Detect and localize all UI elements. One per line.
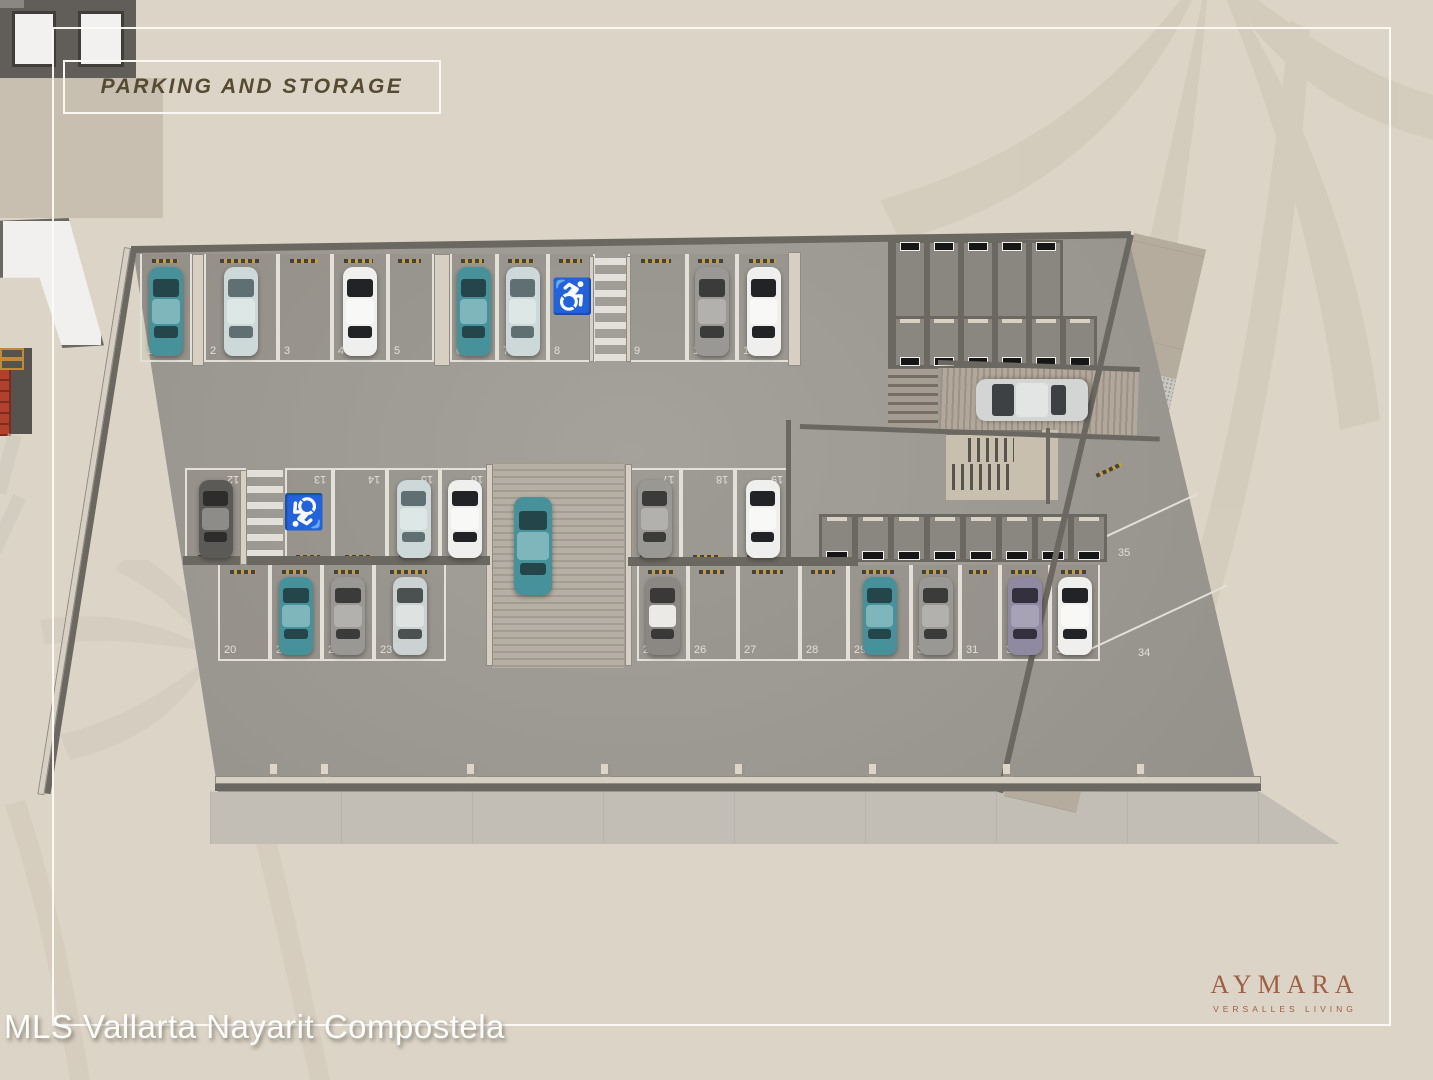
stall-partition: [434, 254, 450, 366]
space-number: 14: [368, 473, 380, 484]
car-roof: [1016, 383, 1047, 417]
car-roof: [152, 299, 180, 324]
car-roof: [1061, 605, 1089, 627]
wheel-stop: [969, 570, 989, 574]
car-rear-window: [229, 326, 253, 338]
car-rear-window: [1063, 629, 1087, 639]
wheel-stop: [1095, 462, 1122, 477]
stair-flight: [968, 438, 1014, 462]
car-roof: [649, 605, 677, 627]
storage-sill: [1007, 517, 1027, 521]
wheel-stop: [862, 570, 894, 574]
stall-partition: [240, 470, 247, 565]
car-windshield: [283, 588, 309, 604]
parking-space-5: 5: [388, 254, 434, 362]
central-ramp: [492, 462, 624, 668]
car-rear-window: [1013, 629, 1037, 639]
storage-door: [935, 552, 954, 559]
car-rear-window: [284, 629, 308, 639]
parking-space-26: 26: [688, 565, 738, 661]
parked-car: [863, 577, 897, 656]
parked-car: [746, 480, 780, 559]
parking-space-31: 31: [960, 565, 1000, 661]
parked-car: [1008, 577, 1042, 656]
car-roof: [346, 299, 374, 324]
parked-car: [638, 480, 672, 559]
car-roof: [400, 508, 428, 530]
storage-sill: [899, 517, 919, 521]
space-number: 8: [554, 346, 560, 357]
column-post: [601, 764, 611, 777]
car-rear-window: [348, 326, 372, 338]
parked-car: [646, 577, 680, 656]
stall-line-diagonal: [1082, 584, 1228, 653]
palm-trunk-shadow: [0, 433, 22, 495]
crosswalk-wall: [626, 256, 631, 362]
red-box: [0, 392, 11, 403]
red-box: [0, 403, 11, 414]
crosswalk: [246, 470, 283, 562]
slide: 1234567891011121314151617181920212223252…: [0, 0, 1433, 1080]
car-rear-window: [520, 563, 547, 576]
car-roof: [866, 605, 894, 627]
island-wall: [628, 557, 858, 566]
storage-unit: [1029, 316, 1063, 368]
crosswalk: [595, 258, 628, 362]
car-rear-window: [1051, 385, 1066, 414]
car-roof: [334, 605, 362, 627]
storage-sill: [900, 319, 919, 323]
car-windshield: [992, 384, 1014, 416]
car-roof: [509, 299, 537, 324]
wheel-stop: [290, 259, 318, 263]
parked-car: [919, 577, 953, 656]
column-post: [1137, 764, 1147, 777]
car-windshield: [203, 491, 229, 507]
wheel-stop: [398, 259, 421, 263]
car-windshield: [510, 279, 536, 297]
storage-unit: [1071, 514, 1107, 562]
stair-wall: [1046, 428, 1050, 504]
car-roof: [396, 605, 424, 627]
car-windshield: [397, 588, 423, 604]
storage-sill: [1036, 319, 1055, 323]
column-post: [467, 764, 477, 777]
car-rear-window: [651, 629, 675, 639]
wheel-stop: [1061, 570, 1086, 574]
space-number: 2: [210, 346, 216, 357]
car-rear-window: [643, 532, 667, 542]
storage-sill: [1079, 517, 1099, 521]
car-windshield: [1012, 588, 1038, 604]
red-box: [0, 370, 11, 381]
column-post: [270, 764, 280, 777]
storage-sill: [935, 517, 955, 521]
parked-car: [695, 267, 729, 356]
parking-space-28: 28: [800, 565, 848, 661]
space-number: 26: [694, 645, 706, 656]
storage-sill: [1002, 319, 1021, 323]
wheel-stop: [698, 259, 723, 263]
car-windshield: [750, 491, 776, 507]
column-post: [869, 764, 879, 777]
parking-space-20: 20: [218, 565, 270, 661]
wheel-stop: [749, 259, 776, 263]
curb-south: [215, 776, 1261, 784]
space-number: 23: [380, 645, 392, 656]
space-number: 9: [634, 346, 640, 357]
equipment-rack: [0, 348, 32, 434]
wheel-stop: [334, 570, 360, 574]
car-roof: [698, 299, 726, 324]
parked-car: [393, 577, 427, 656]
car-roof: [282, 605, 310, 627]
floor-plan: 1234567891011121314151617181920212223252…: [0, 0, 1433, 1080]
wheel-stop: [230, 570, 256, 574]
brand-logo: AYMARA VERSALLES LIVING: [1205, 970, 1365, 1014]
storage-door: [969, 243, 987, 250]
elevator-2: [78, 11, 124, 67]
car-roof: [1011, 605, 1039, 627]
wheel-stop: [282, 570, 308, 574]
car-rear-window: [402, 532, 426, 542]
rack-shelf: [0, 348, 24, 359]
storage-door: [971, 552, 990, 559]
car-roof: [202, 508, 230, 530]
wheel-stop: [811, 570, 835, 574]
column-post: [321, 764, 331, 777]
storage-sill: [968, 319, 987, 323]
page-title: PARKING AND STORAGE: [101, 75, 404, 99]
storage-sill: [1070, 319, 1089, 323]
parked-car: [279, 577, 313, 656]
storage-unit: [963, 514, 999, 562]
car-on-entry-ramp: [976, 379, 1088, 421]
car-windshield: [751, 279, 777, 297]
car-rear-window: [204, 532, 228, 542]
car-rear-window: [511, 326, 535, 338]
parked-car: [457, 267, 491, 356]
rack-shelf: [0, 359, 24, 370]
space-number: 28: [806, 645, 818, 656]
storage-sill: [934, 319, 953, 323]
car-windshield: [1062, 588, 1088, 604]
storage-door: [1003, 243, 1021, 250]
car-roof: [227, 299, 255, 324]
car-on-central-ramp: [514, 497, 552, 595]
storage-sill: [863, 517, 883, 521]
space-number: 13: [314, 473, 326, 484]
car-windshield: [153, 279, 179, 297]
storage-unit: [1063, 316, 1097, 368]
wheel-stop: [508, 259, 534, 263]
car-rear-window: [924, 629, 948, 639]
column-post: [1003, 764, 1013, 777]
stairwell: [946, 430, 1058, 500]
red-box: [0, 381, 11, 392]
corridor-wall: [786, 420, 791, 566]
car-rear-window: [751, 532, 775, 542]
stall-partition: [192, 254, 204, 366]
storage-unit: [893, 316, 927, 368]
parking-space-35-number: 35: [1118, 548, 1130, 559]
wheel-stop: [922, 570, 947, 574]
storage-unit: [995, 316, 1029, 368]
elevator-door: [0, 4, 24, 8]
handicap-icon: ♿: [551, 280, 593, 314]
brand-name: AYMARA: [1205, 970, 1365, 1000]
brand-tagline: VERSALLES LIVING: [1205, 1004, 1365, 1014]
parking-space-34-number: 34: [1138, 648, 1150, 659]
parked-car: [397, 480, 431, 559]
car-roof: [922, 605, 950, 627]
stair-flight: [952, 464, 1014, 490]
parked-car: [224, 267, 258, 356]
wheel-stop: [699, 570, 724, 574]
storage-door: [1037, 243, 1055, 250]
parking-space-3: 3: [278, 254, 332, 362]
parked-car: [448, 480, 482, 559]
car-windshield: [923, 588, 949, 604]
space-number: 5: [394, 346, 400, 357]
car-roof: [460, 299, 488, 324]
storage-sill: [971, 517, 991, 521]
wheel-stop: [390, 570, 427, 574]
parked-car: [343, 267, 377, 356]
storage-door: [863, 552, 882, 559]
car-windshield: [335, 588, 361, 604]
wheel-stop: [1011, 570, 1036, 574]
storage-sill: [827, 517, 847, 521]
stall-partition: [788, 252, 801, 366]
space-number: 20: [224, 645, 236, 656]
storage-unit: [855, 514, 891, 562]
column-post: [735, 764, 745, 777]
space-number: 3: [284, 346, 290, 357]
side-stairs: [888, 366, 938, 432]
car-roof: [749, 508, 777, 530]
parked-car: [331, 577, 365, 656]
space-number: 18: [716, 473, 728, 484]
storage-unit: [891, 514, 927, 562]
palm-trunk-shadow: [0, 494, 26, 554]
car-windshield: [461, 279, 487, 297]
title-box: PARKING AND STORAGE: [63, 60, 441, 114]
car-windshield: [519, 511, 548, 531]
elevator-1: [12, 11, 56, 67]
car-rear-window: [154, 326, 178, 338]
parked-car: [149, 267, 183, 356]
parking-space-9: 9: [628, 254, 687, 362]
storage-unit: [819, 514, 855, 562]
car-windshield: [642, 491, 668, 507]
storage-door: [901, 243, 919, 250]
space-number: 27: [744, 645, 756, 656]
car-windshield: [452, 491, 478, 507]
mls-watermark: MLS Vallarta Nayarit Compostela: [4, 1008, 505, 1046]
wheel-stop: [559, 259, 583, 263]
car-roof: [517, 532, 548, 559]
car-windshield: [650, 588, 676, 604]
car-windshield: [347, 279, 373, 297]
storage-unit: [927, 514, 963, 562]
storage-door: [901, 358, 919, 365]
wall-south: [215, 784, 1261, 791]
car-rear-window: [700, 326, 724, 338]
storage-unit: [999, 514, 1035, 562]
ramp-rail: [486, 464, 493, 666]
car-windshield: [867, 588, 893, 604]
wheel-stop: [752, 570, 784, 574]
parked-car: [506, 267, 540, 356]
car-roof: [750, 299, 778, 324]
wheel-stop: [220, 259, 259, 263]
wheel-stop: [152, 259, 178, 263]
car-windshield: [228, 279, 254, 297]
storage-door: [1007, 552, 1026, 559]
car-rear-window: [453, 532, 477, 542]
storage-wall: [888, 238, 893, 368]
parked-car: [1058, 577, 1092, 656]
storage-door: [899, 552, 918, 559]
car-windshield: [401, 491, 427, 507]
car-rear-window: [752, 326, 776, 338]
car-rear-window: [868, 629, 892, 639]
red-box: [0, 414, 11, 425]
car-roof: [641, 508, 669, 530]
wheel-stop: [461, 259, 485, 263]
car-roof: [451, 508, 479, 530]
parked-car: [747, 267, 781, 356]
car-rear-window: [398, 629, 422, 639]
parking-space-14: 14: [333, 468, 387, 564]
car-rear-window: [336, 629, 360, 639]
car-windshield: [699, 279, 725, 297]
parking-space-27: 27: [738, 565, 800, 661]
space-number: 31: [966, 645, 978, 656]
handicap-icon: ♿: [283, 494, 325, 528]
car-rear-window: [462, 326, 486, 338]
storage-door: [935, 243, 953, 250]
parking-space-18: 18: [681, 468, 735, 564]
wheel-stop: [344, 259, 373, 263]
storage-door: [1079, 552, 1098, 559]
elevator-lobby: [0, 218, 104, 348]
parked-car: [199, 480, 233, 559]
wheel-stop: [648, 570, 674, 574]
island-wall: [183, 556, 490, 565]
wheel-stop: [641, 259, 671, 263]
